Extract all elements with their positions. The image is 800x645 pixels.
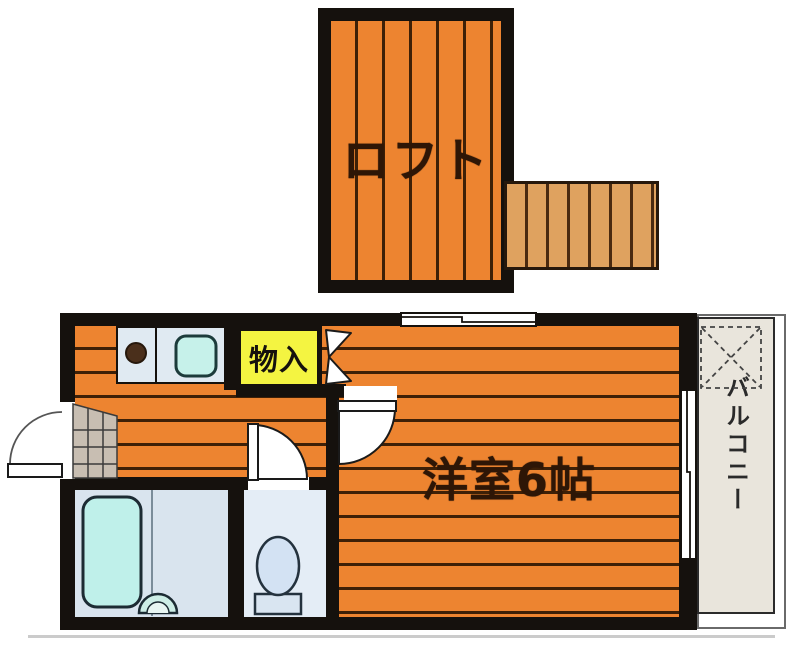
- bathroom-floor: [75, 490, 228, 617]
- loft-label: ロフト: [343, 122, 490, 191]
- toilet-room-floor: [244, 490, 326, 617]
- closet-label: 物入: [249, 337, 309, 379]
- balcony-area: バルコニー: [697, 317, 775, 614]
- sliding-window-balcony-icon: [680, 389, 697, 560]
- bottom-divider-line: [28, 635, 775, 638]
- main-room-label: 洋室6帖: [422, 453, 596, 507]
- sliding-window-top-icon: [400, 312, 537, 327]
- floor-plan: ロフト 物入 バルコニー: [0, 0, 800, 645]
- room-loft: ロフト: [318, 8, 514, 293]
- main-room-doorway: [344, 386, 397, 405]
- entrance-door-icon: [8, 412, 62, 477]
- entrance-doorway: [60, 402, 75, 479]
- wall-hall-mainroom: [326, 384, 339, 617]
- main-room-label-wrap: 洋室6帖: [339, 444, 679, 510]
- balcony-label: バルコニー: [719, 375, 754, 515]
- wall-bath-toilet: [228, 477, 244, 617]
- loft-ladder-icon: [504, 181, 659, 270]
- kitchen-counter: [116, 326, 228, 384]
- storage-closet: 物入: [236, 326, 322, 389]
- toilet-doorway: [248, 477, 309, 490]
